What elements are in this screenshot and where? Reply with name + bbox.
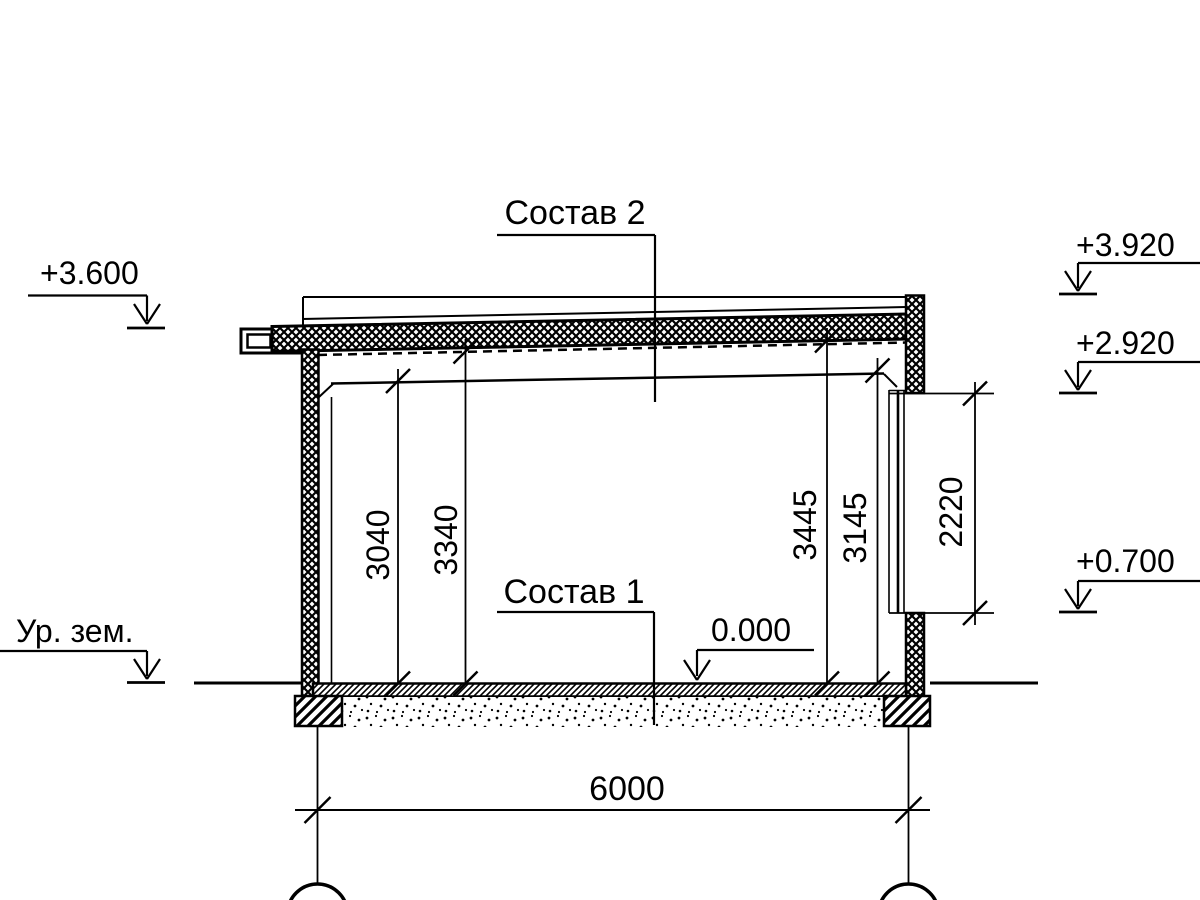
dimension-height-3145: 3145 xyxy=(837,358,890,696)
elevation-mark-ground: Ур. зем. xyxy=(0,613,165,683)
elevation-parapet-label: +3.920 xyxy=(1076,227,1175,263)
eave-fascia-inner xyxy=(248,335,271,348)
elevation-window-sill-label: +0.700 xyxy=(1076,543,1175,579)
dimension-height-3145-label: 3145 xyxy=(837,492,873,563)
dimension-height-3340-label: 3340 xyxy=(428,504,464,575)
foundation-left xyxy=(295,696,342,726)
dimension-height-3445: 3445 xyxy=(787,328,839,696)
roof-composition-label: Состав 2 xyxy=(505,194,646,232)
dimension-height-3040: 3040 xyxy=(360,369,410,696)
grid-axes xyxy=(288,726,939,900)
elevation-mark-window-sill: +0.700 xyxy=(1059,543,1200,612)
foundation-right xyxy=(884,696,930,726)
axis-bubble-left xyxy=(288,884,348,900)
underfloor-bedding xyxy=(342,697,885,727)
elevation-mark-floor-zero: 0.000 xyxy=(684,612,814,680)
dimension-height-3040-label: 3040 xyxy=(360,509,396,580)
dimension-height-3340: 3340 xyxy=(428,339,478,696)
drawing-canvas: 6000 3040 3340 3445 3145 2220 xyxy=(0,0,1200,900)
dimension-height-3445-label: 3445 xyxy=(787,489,823,560)
elevation-mark-parapet: +3.920 xyxy=(1059,227,1200,294)
dimension-span: 6000 xyxy=(295,770,930,823)
elevation-mark-eave: +3.600 xyxy=(28,255,165,328)
window-frame xyxy=(889,390,906,613)
roof-slab xyxy=(272,307,906,355)
axis-bubble-right xyxy=(879,884,939,900)
left-wall xyxy=(302,350,319,698)
elevation-ground-label: Ур. зем. xyxy=(16,613,133,649)
elevation-floor-zero-label: 0.000 xyxy=(711,612,791,648)
elevation-mark-window-head: +2.920 xyxy=(1059,325,1200,393)
floor-composition-label: Состав 1 xyxy=(504,573,645,611)
dimension-span-label: 6000 xyxy=(589,770,665,808)
elevation-window-head-label: +2.920 xyxy=(1076,325,1175,361)
right-wall xyxy=(906,296,924,698)
elevation-eave-label: +3.600 xyxy=(40,255,139,291)
dimension-window-2220-label: 2220 xyxy=(933,476,969,547)
